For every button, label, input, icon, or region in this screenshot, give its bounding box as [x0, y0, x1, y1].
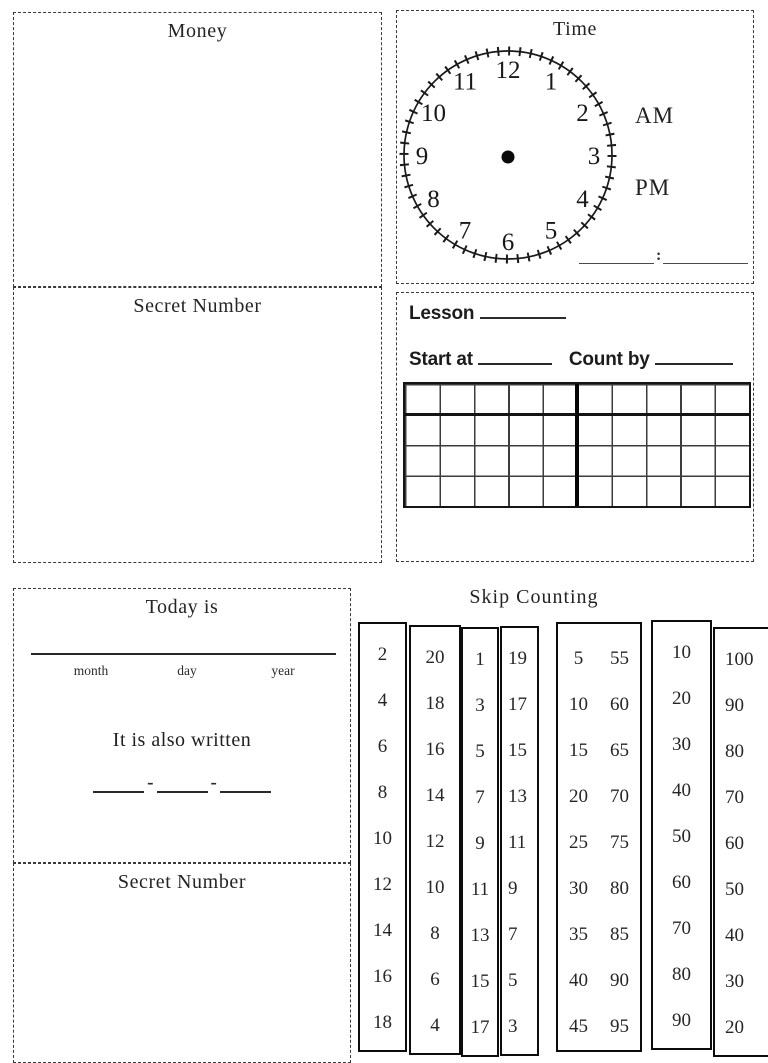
skip-number: 1: [463, 637, 497, 683]
skip-number: 13: [502, 774, 537, 820]
skip-column-twos-down: 201816141210864: [409, 625, 461, 1055]
skip-number: 555: [558, 636, 640, 682]
clock-number: 4: [576, 186, 589, 213]
skip-number: 60: [653, 860, 710, 906]
lesson-label: Lesson: [409, 303, 474, 324]
skip-column-twos-up: 24681012141618: [358, 622, 407, 1052]
skip-number: 40: [715, 913, 768, 959]
today-title: Today is: [14, 596, 350, 619]
skip-number: 6: [360, 724, 405, 770]
skip-number-value: 85: [599, 912, 640, 958]
skip-number: 18: [360, 1000, 405, 1046]
skip-number: 16: [360, 954, 405, 1000]
skip-number: 4090: [558, 958, 640, 1004]
skip-column-odds-down: 19171513119753: [500, 626, 539, 1056]
clock-number: 5: [545, 218, 558, 245]
skip-number: 2575: [558, 820, 640, 866]
skip-number: 10: [360, 816, 405, 862]
skip-number: 80: [715, 729, 768, 775]
date-hyphen: -: [147, 773, 153, 793]
skip-column-fives-pairs: 55510601565207025753080358540904595: [556, 622, 642, 1052]
skip-number-value: 80: [599, 866, 640, 912]
skip-number: 14: [360, 908, 405, 954]
skip-number: 18: [411, 681, 459, 727]
clock-number: 9: [416, 143, 429, 170]
date-part-blank: [220, 778, 271, 793]
skip-number-value: 75: [599, 820, 640, 866]
skip-number: 4: [411, 1003, 459, 1049]
secret-number-title: Secret Number: [14, 871, 350, 894]
skip-number-value: 15: [558, 728, 599, 774]
skip-number: 10: [653, 630, 710, 676]
skip-column-tens-up: 102030405060708090: [651, 620, 712, 1050]
date-hyphen: -: [211, 773, 217, 793]
skip-number-value: 20: [558, 774, 599, 820]
panel-today: Today is month day year It is also writt…: [13, 588, 351, 863]
lesson-row: Lesson: [409, 303, 566, 325]
skip-number: 100: [715, 637, 768, 683]
time-hour-blank: [579, 248, 654, 264]
start-at-blank: [478, 351, 552, 365]
start-count-row: Start atCount by: [409, 349, 733, 371]
money-title: Money: [14, 20, 381, 43]
clock-number: 2: [576, 100, 589, 127]
skip-number: 30: [653, 722, 710, 768]
skip-number: 40: [653, 768, 710, 814]
am-label: AM: [635, 103, 674, 129]
worksheet-page: { "money": { "title": "Money" }, "secret…: [0, 0, 768, 1024]
skip-number: 16: [411, 727, 459, 773]
skip-number: 11: [502, 820, 537, 866]
panel-secret-number-top: Secret Number: [13, 287, 382, 563]
count-by-blank: [655, 351, 733, 365]
skip-number: 15: [502, 728, 537, 774]
lesson-blank: [480, 305, 566, 319]
skip-number-value: 55: [599, 636, 640, 682]
skip-column-odds-up: 1357911131517: [461, 627, 499, 1057]
skip-number: 50: [715, 867, 768, 913]
skip-number: 13: [463, 913, 497, 959]
skip-number: 7: [502, 912, 537, 958]
skip-number-value: 25: [558, 820, 599, 866]
day-label: day: [177, 663, 197, 679]
skip-number: 1565: [558, 728, 640, 774]
skip-number: 1060: [558, 682, 640, 728]
skip-number: 90: [715, 683, 768, 729]
skip-number-value: 45: [558, 1004, 599, 1050]
skip-number: 20: [715, 1005, 768, 1051]
clock-number: 10: [421, 100, 446, 127]
skip-number: 7: [463, 775, 497, 821]
skip-number: 4: [360, 678, 405, 724]
secret-number-title: Secret Number: [14, 295, 381, 318]
clock-number: 8: [427, 186, 440, 213]
skip-number: 3080: [558, 866, 640, 912]
skip-number: 20: [653, 676, 710, 722]
skip-number: 20: [411, 635, 459, 681]
year-label: year: [271, 663, 294, 679]
clock-number: 6: [502, 229, 515, 256]
skip-number: 2: [360, 632, 405, 678]
skip-number: 70: [715, 775, 768, 821]
skip-number: 10: [411, 865, 459, 911]
skip-number: 70: [653, 906, 710, 952]
clock-number: 3: [588, 143, 601, 170]
clock-center-dot: [502, 151, 515, 164]
skip-number: 9: [502, 866, 537, 912]
skip-number: 50: [653, 814, 710, 860]
start-at-label: Start at: [409, 349, 473, 370]
clock-number: 1: [545, 69, 558, 96]
skip-number: 8: [360, 770, 405, 816]
clock-number: 11: [453, 69, 477, 96]
clock-number: 12: [496, 57, 521, 84]
time-title: Time: [397, 18, 753, 41]
panel-lesson: Lesson Start atCount by: [396, 292, 754, 562]
panel-secret-number-bottom: Secret Number: [13, 863, 351, 1063]
skip-number: 80: [653, 952, 710, 998]
skip-number: 2070: [558, 774, 640, 820]
skip-number: 14: [411, 773, 459, 819]
also-written-text: It is also written: [14, 729, 350, 752]
skip-number-value: 35: [558, 912, 599, 958]
skip-number: 4595: [558, 1004, 640, 1050]
skip-number: 90: [653, 998, 710, 1044]
panel-money: Money: [13, 12, 382, 287]
skip-number: 17: [463, 1005, 497, 1051]
skip-number: 8: [411, 911, 459, 957]
skip-counting-title: Skip Counting: [374, 586, 694, 609]
date-part-blank: [93, 778, 144, 793]
skip-number: 60: [715, 821, 768, 867]
skip-number: 5: [463, 729, 497, 775]
skip-number: 15: [463, 959, 497, 1005]
skip-number: 6: [411, 957, 459, 1003]
time-blank-row: :: [579, 247, 748, 264]
skip-number-value: 95: [599, 1004, 640, 1050]
skip-number-value: 70: [599, 774, 640, 820]
skip-number-value: 5: [558, 636, 599, 682]
skip-column-tens-down: 1009080706050403020: [713, 627, 768, 1057]
skip-number: 11: [463, 867, 497, 913]
date-blank-line: [31, 653, 336, 655]
skip-number-value: 65: [599, 728, 640, 774]
clock-face: 121234567891011: [399, 44, 617, 266]
skip-number: 12: [411, 819, 459, 865]
skip-number: 17: [502, 682, 537, 728]
skip-number: 3: [502, 1004, 537, 1050]
skip-number-value: 30: [558, 866, 599, 912]
panel-time: Time 121234567891011 AM PM :: [396, 10, 754, 284]
pm-label: PM: [635, 175, 670, 201]
skip-number-value: 40: [558, 958, 599, 1004]
skip-number-value: 10: [558, 682, 599, 728]
counting-grid: [403, 382, 751, 508]
skip-number: 3585: [558, 912, 640, 958]
clock-number: 7: [459, 218, 472, 245]
skip-number: 5: [502, 958, 537, 1004]
skip-number: 12: [360, 862, 405, 908]
date-part-blank: [157, 778, 208, 793]
skip-number-value: 90: [599, 958, 640, 1004]
month-label: month: [74, 663, 109, 679]
date-written-blanks: - -: [14, 773, 350, 793]
count-by-label: Count by: [569, 349, 650, 370]
time-minute-blank: [663, 248, 748, 264]
skip-number: 9: [463, 821, 497, 867]
skip-number: 30: [715, 959, 768, 1005]
skip-number: 19: [502, 636, 537, 682]
time-colon: :: [656, 247, 661, 264]
skip-number-value: 60: [599, 682, 640, 728]
skip-number: 3: [463, 683, 497, 729]
